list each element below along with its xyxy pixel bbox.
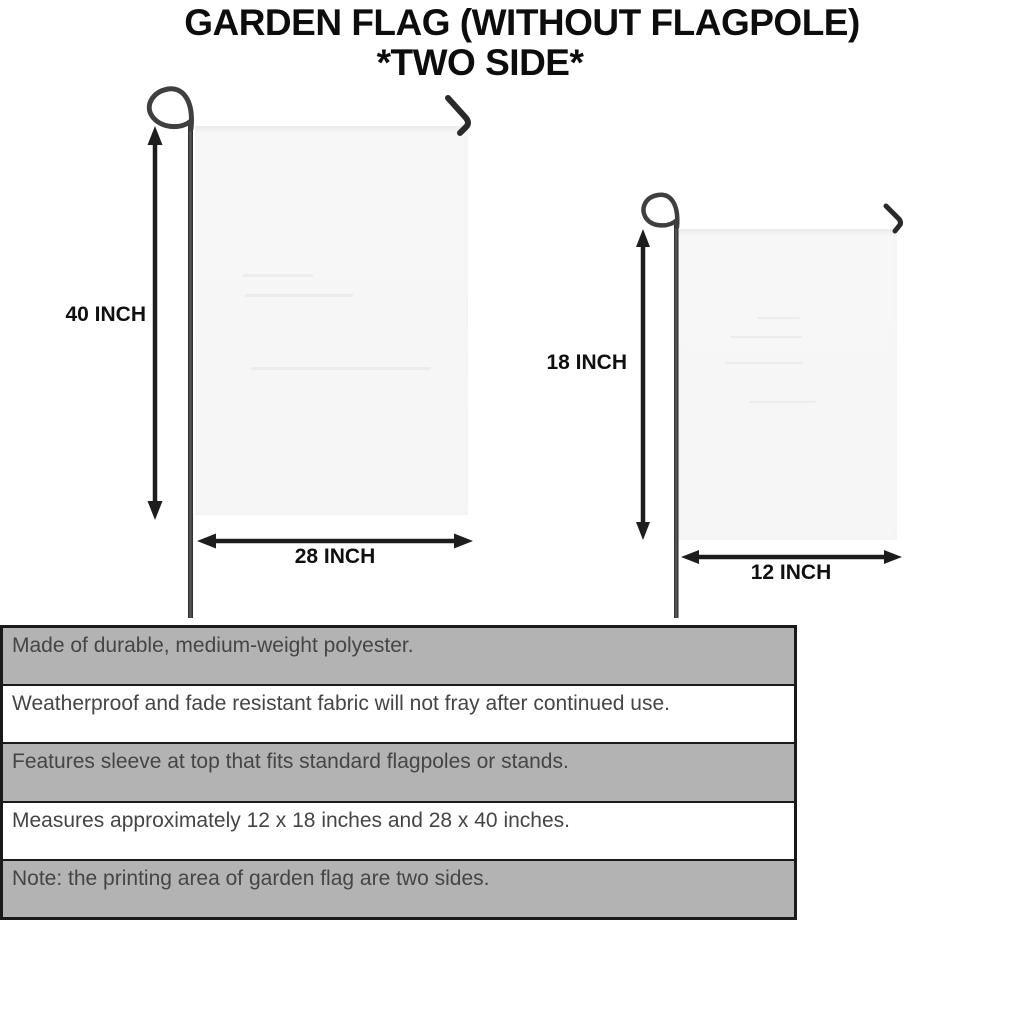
small-flag-width-label: 12 INCH [661,562,921,584]
feature-table: Made of durable, medium-weight polyester… [0,625,797,920]
large-flagpole-loop-icon [149,89,191,129]
wrinkle-streak [758,317,800,319]
small-flagpole-loop-icon [643,195,677,227]
height-arrow-40inch [148,126,163,520]
large-flag-height-label: 40 INCH [0,304,146,326]
large-flag-width-label: 28 INCH [205,546,465,568]
feature-row: Made of durable, medium-weight polyester… [3,628,794,686]
feature-row: Measures approximately 12 x 18 inches an… [3,803,794,861]
small-flag-fabric [678,229,897,540]
wrinkle-streak [730,336,802,338]
page-title-line2: *TWO SIDE* [0,43,960,83]
feature-row: Note: the printing area of garden flag a… [3,861,794,917]
feature-row: Features sleeve at top that fits standar… [3,744,794,802]
wrinkle-streak [251,367,431,370]
large-flag-fabric [195,126,468,515]
wrinkle-streak [245,294,353,297]
height-arrow-18inch [636,229,650,540]
product-infographic: GARDEN FLAG (WITHOUT FLAGPOLE) *TWO SIDE… [0,0,1024,1024]
wrinkle-streak [750,401,816,403]
wrinkle-streak [725,362,803,364]
feature-row: Weatherproof and fade resistant fabric w… [3,686,794,744]
large-flagpole [188,120,193,618]
small-flagpole-hook-icon [886,206,901,231]
wrinkle-streak [243,274,313,277]
page-title-line1: GARDEN FLAG (WITHOUT FLAGPOLE) [20,3,1024,43]
small-flag-height-label: 18 INCH [480,352,627,374]
